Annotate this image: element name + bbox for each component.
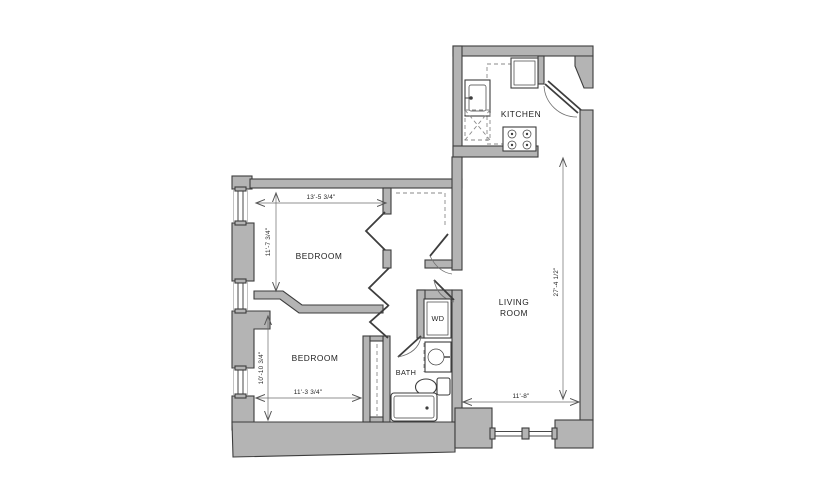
bath-door	[398, 336, 421, 357]
wall-segment-bedroom-divider	[254, 291, 383, 313]
wall-segment	[555, 420, 593, 448]
closet-line	[396, 193, 445, 226]
wall-segment-closet-jamb	[370, 336, 383, 341]
wall-segment	[383, 188, 391, 214]
wall-segment	[455, 408, 492, 448]
entry-door	[544, 81, 581, 117]
wall-segment	[383, 250, 391, 268]
bedroom-bottom-label: BEDROOM	[292, 353, 339, 363]
wall-segment-kitchen-left	[453, 46, 462, 158]
bath-sink-icon	[425, 342, 451, 372]
dim-bedroom-bottom-depth: 10'-10 3/4"	[258, 352, 265, 385]
wall-segment-closet-jamb	[370, 417, 383, 422]
window-living-bottom	[490, 428, 557, 439]
wall-segment-living-left	[452, 157, 462, 270]
dim-bedroom-bottom-width: 11'-3 3/4"	[294, 389, 322, 396]
living-room-label-line2: ROOM	[500, 308, 528, 318]
wall-segment-bottom-slab	[232, 422, 455, 457]
dim-bedroom-top-depth: 11'-7 3/4"	[265, 228, 272, 256]
floor-plan-page: WD 13'-5 3/4" 11'-7 3/4" 10'-10 3/4"	[0, 0, 825, 500]
bedroom-top-label: BEDROOM	[296, 251, 343, 261]
dimensions: 13'-5 3/4" 11'-7 3/4" 10'-10 3/4" 11'-3 …	[256, 158, 579, 420]
wall-segment-fridge-stub	[538, 56, 544, 84]
wall-segment-entry-corner	[575, 56, 593, 88]
bedroom-top-door	[366, 212, 385, 250]
wall-segment-right	[580, 110, 593, 420]
bath-label: BATH	[396, 368, 417, 377]
dim-living-height: 27'-4 1/2"	[553, 268, 560, 297]
wall-segment	[232, 223, 254, 281]
refrigerator-icon	[511, 58, 538, 88]
window	[234, 279, 248, 313]
wall-segment	[383, 336, 390, 422]
window	[234, 366, 248, 398]
kitchen-sink-icon	[465, 80, 490, 116]
doors	[366, 81, 581, 357]
window	[234, 187, 248, 225]
stove-icon	[503, 127, 536, 151]
wall-segment-bath-right	[452, 290, 462, 422]
hall-door	[369, 268, 389, 306]
wd-label: WD	[432, 314, 445, 323]
wall-segment-bedroom-top	[250, 179, 462, 188]
wall-segment-closet-bottom	[425, 260, 452, 268]
washer-dryer-icon: WD	[424, 299, 451, 338]
kitchen-label: KITCHEN	[501, 109, 541, 119]
wall-segment	[363, 336, 370, 422]
floor-plan-drawing: WD 13'-5 3/4" 11'-7 3/4" 10'-10 3/4"	[0, 0, 825, 500]
wall-segment-kitchen-top	[453, 46, 593, 56]
dim-living-width: 11'-8"	[512, 393, 529, 400]
living-room-label-line1: LIVING	[499, 297, 529, 307]
dim-bedroom-top-width: 13'-5 3/4"	[307, 194, 336, 201]
bathtub-icon	[391, 393, 437, 421]
